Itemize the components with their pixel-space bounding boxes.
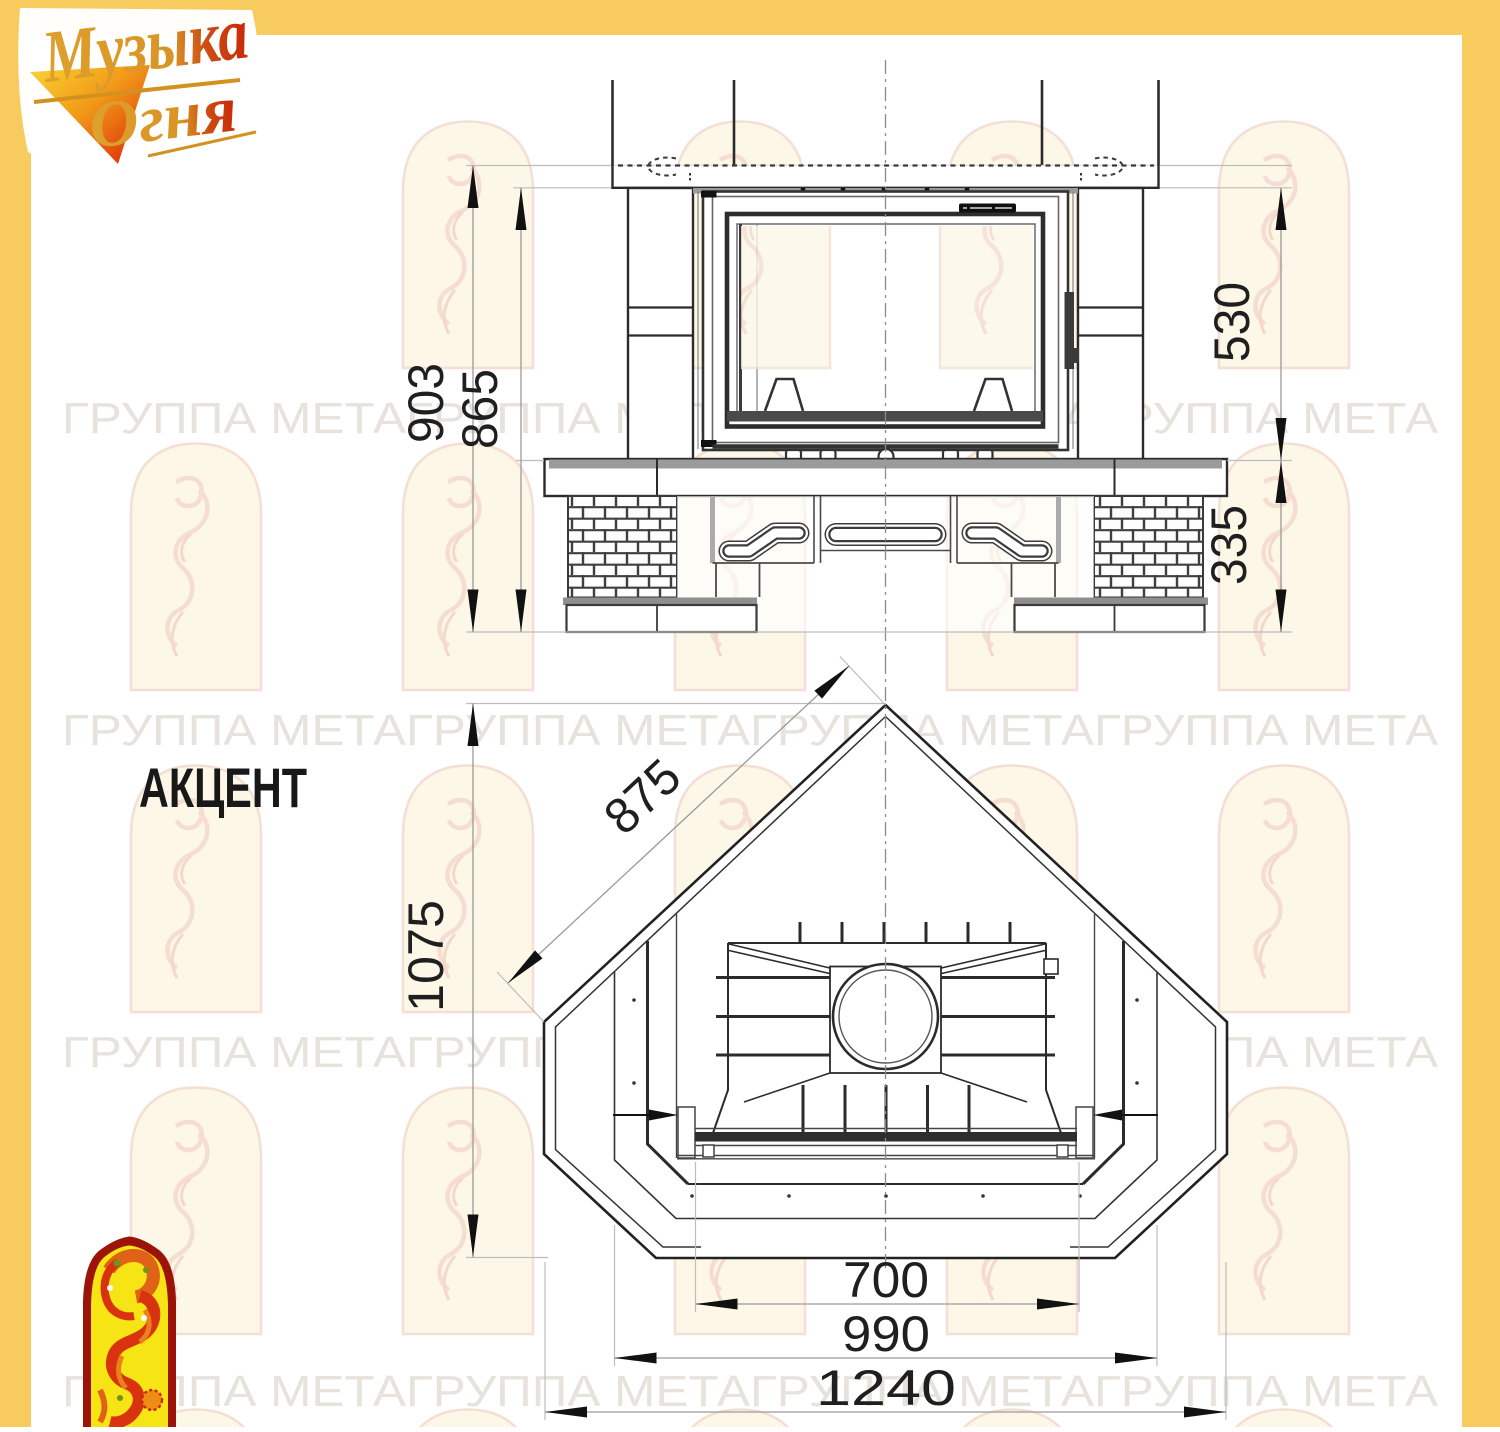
svg-text:ГРУППА МЕТАГРУППА МЕТАГРУППА М: ГРУППА МЕТАГРУППА МЕТАГРУППА МЕТАГРУППА …	[62, 1367, 1439, 1416]
svg-text:1240: 1240	[816, 1360, 956, 1416]
svg-text:903: 903	[398, 363, 454, 443]
svg-text:1075: 1075	[398, 900, 454, 1012]
svg-text:700: 700	[843, 1252, 929, 1308]
svg-text:АКЦЕНТ: АКЦЕНТ	[139, 756, 307, 819]
svg-text:865: 865	[452, 369, 508, 449]
svg-text:530: 530	[1204, 282, 1260, 362]
svg-text:335: 335	[1201, 505, 1257, 585]
svg-text:ГРУППА МЕТАГРУППА МЕТАГРУППА М: ГРУППА МЕТАГРУППА МЕТАГРУППА МЕТАГРУППА …	[62, 706, 1439, 755]
svg-text:990: 990	[842, 1306, 930, 1362]
